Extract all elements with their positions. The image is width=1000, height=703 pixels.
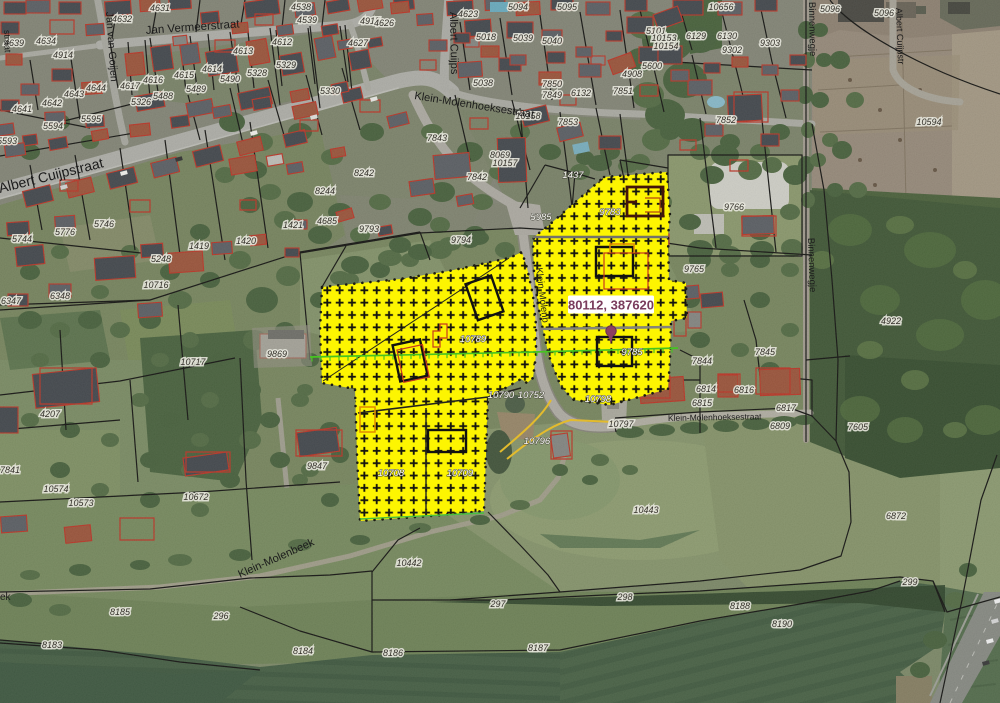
svg-text:5038: 5038 bbox=[473, 78, 493, 88]
svg-text:80112, 387620: 80112, 387620 bbox=[568, 298, 654, 313]
svg-text:5593: 5593 bbox=[0, 136, 17, 146]
svg-text:6816: 6816 bbox=[734, 385, 754, 395]
svg-text:7851: 7851 bbox=[613, 86, 633, 96]
svg-text:6817: 6817 bbox=[776, 403, 797, 413]
svg-text:7845: 7845 bbox=[755, 347, 776, 357]
svg-text:10573: 10573 bbox=[68, 498, 93, 508]
svg-text:5095: 5095 bbox=[557, 2, 578, 12]
svg-text:5094: 5094 bbox=[508, 2, 528, 12]
svg-text:4642: 4642 bbox=[42, 98, 62, 108]
svg-text:9847: 9847 bbox=[307, 461, 328, 471]
svg-text:5776: 5776 bbox=[55, 227, 75, 237]
svg-text:10442: 10442 bbox=[396, 558, 421, 568]
svg-text:9303: 9303 bbox=[760, 38, 780, 48]
svg-text:6815: 6815 bbox=[692, 398, 713, 408]
svg-text:straat: straat bbox=[2, 30, 13, 53]
svg-text:4613: 4613 bbox=[233, 46, 253, 56]
svg-text:7605: 7605 bbox=[848, 422, 869, 432]
svg-text:8187: 8187 bbox=[528, 643, 549, 653]
svg-text:4623: 4623 bbox=[458, 9, 478, 19]
svg-text:4615: 4615 bbox=[174, 70, 195, 80]
svg-text:4539: 4539 bbox=[297, 15, 317, 25]
svg-text:Albert Cuijpstr: Albert Cuijpstr bbox=[894, 8, 906, 65]
svg-text:1420: 1420 bbox=[236, 236, 256, 246]
svg-text:1437: 1437 bbox=[562, 170, 584, 181]
svg-text:5488: 5488 bbox=[153, 91, 173, 101]
svg-text:10752: 10752 bbox=[518, 390, 545, 401]
svg-text:6809: 6809 bbox=[770, 421, 790, 431]
svg-text:4538: 4538 bbox=[291, 2, 311, 12]
svg-text:10443: 10443 bbox=[633, 505, 658, 515]
svg-text:5328: 5328 bbox=[247, 68, 267, 78]
svg-text:10789: 10789 bbox=[460, 334, 487, 345]
svg-text:7842: 7842 bbox=[467, 172, 487, 182]
svg-text:6814: 6814 bbox=[696, 384, 716, 394]
svg-text:8188: 8188 bbox=[730, 601, 750, 611]
svg-text:9869: 9869 bbox=[267, 349, 287, 359]
svg-text:9785: 9785 bbox=[621, 347, 643, 358]
svg-text:4207: 4207 bbox=[40, 409, 61, 419]
svg-text:7850: 7850 bbox=[542, 79, 562, 89]
svg-text:ek: ek bbox=[0, 592, 12, 603]
svg-text:10796: 10796 bbox=[524, 436, 551, 447]
svg-text:8242: 8242 bbox=[354, 168, 374, 178]
svg-text:8184: 8184 bbox=[293, 646, 313, 656]
svg-text:10594: 10594 bbox=[916, 117, 941, 127]
svg-text:4641: 4641 bbox=[12, 104, 32, 114]
svg-text:5326: 5326 bbox=[131, 97, 151, 107]
svg-text:5248: 5248 bbox=[151, 254, 171, 264]
svg-text:4634: 4634 bbox=[36, 36, 56, 46]
svg-text:5040: 5040 bbox=[542, 36, 562, 46]
svg-text:Binnenwegje: Binnenwegje bbox=[805, 238, 818, 293]
svg-text:Klein-Molenhoeksestraat: Klein-Molenhoeksestraat bbox=[668, 411, 762, 423]
svg-text:5744: 5744 bbox=[12, 234, 32, 244]
svg-text:10709: 10709 bbox=[447, 468, 474, 479]
svg-text:4922: 4922 bbox=[881, 316, 901, 326]
svg-text:5329: 5329 bbox=[276, 60, 296, 70]
svg-text:8190: 8190 bbox=[772, 619, 792, 629]
svg-text:5489: 5489 bbox=[186, 84, 206, 94]
svg-text:297: 297 bbox=[489, 599, 506, 609]
svg-text:9793: 9793 bbox=[359, 224, 379, 234]
svg-text:5600: 5600 bbox=[642, 61, 662, 71]
svg-text:298: 298 bbox=[616, 592, 632, 602]
svg-text:9302: 9302 bbox=[722, 45, 742, 55]
svg-text:5096: 5096 bbox=[820, 4, 840, 14]
svg-text:6347: 6347 bbox=[1, 296, 22, 306]
svg-text:10157: 10157 bbox=[492, 158, 518, 168]
svg-text:10798: 10798 bbox=[585, 394, 612, 405]
svg-text:5746: 5746 bbox=[94, 219, 114, 229]
svg-text:4627: 4627 bbox=[348, 38, 369, 48]
svg-text:6129: 6129 bbox=[686, 31, 706, 41]
svg-text:4617: 4617 bbox=[120, 81, 141, 91]
svg-text:7843: 7843 bbox=[427, 133, 447, 143]
svg-text:7852: 7852 bbox=[716, 115, 736, 125]
svg-text:8244: 8244 bbox=[315, 186, 335, 196]
svg-text:7841: 7841 bbox=[0, 465, 20, 475]
svg-text:4631: 4631 bbox=[150, 3, 170, 13]
svg-text:4908: 4908 bbox=[622, 69, 642, 79]
svg-text:10154: 10154 bbox=[653, 41, 678, 51]
svg-text:5595: 5595 bbox=[81, 114, 102, 124]
svg-text:7849: 7849 bbox=[542, 90, 562, 100]
svg-text:1421: 1421 bbox=[283, 220, 303, 230]
svg-text:299: 299 bbox=[901, 577, 917, 587]
svg-text:9765: 9765 bbox=[684, 264, 705, 274]
svg-text:8185: 8185 bbox=[110, 607, 131, 617]
svg-text:10797: 10797 bbox=[608, 419, 634, 429]
svg-text:10716: 10716 bbox=[143, 280, 168, 290]
svg-text:10656: 10656 bbox=[708, 2, 733, 12]
svg-text:7853: 7853 bbox=[558, 117, 578, 127]
svg-text:6132: 6132 bbox=[571, 88, 591, 98]
svg-text:10672: 10672 bbox=[183, 492, 208, 502]
svg-text:1419: 1419 bbox=[189, 241, 209, 251]
svg-text:4643: 4643 bbox=[64, 89, 84, 99]
svg-text:Binnenwegje: Binnenwegje bbox=[806, 2, 818, 57]
svg-text:4614: 4614 bbox=[202, 64, 222, 74]
svg-text:5039: 5039 bbox=[513, 33, 533, 43]
svg-text:Albert Cuijps: Albert Cuijps bbox=[447, 12, 460, 75]
svg-text:9794: 9794 bbox=[451, 235, 471, 245]
svg-text:5330: 5330 bbox=[320, 86, 340, 96]
svg-text:5594: 5594 bbox=[43, 121, 63, 131]
svg-text:4685: 4685 bbox=[317, 216, 338, 226]
svg-text:8186: 8186 bbox=[383, 648, 403, 658]
svg-text:7844: 7844 bbox=[692, 356, 712, 366]
svg-text:10717: 10717 bbox=[180, 357, 206, 367]
svg-text:9766: 9766 bbox=[724, 202, 744, 212]
svg-text:6348: 6348 bbox=[50, 291, 70, 301]
svg-text:10790: 10790 bbox=[488, 390, 515, 401]
svg-text:296: 296 bbox=[212, 611, 228, 621]
svg-text:4914: 4914 bbox=[53, 50, 73, 60]
svg-text:6130: 6130 bbox=[717, 31, 737, 41]
svg-text:5096: 5096 bbox=[874, 8, 894, 18]
svg-text:10708: 10708 bbox=[378, 468, 405, 479]
svg-text:4616: 4616 bbox=[143, 75, 163, 85]
svg-text:5018: 5018 bbox=[476, 32, 496, 42]
svg-text:4644: 4644 bbox=[86, 83, 106, 93]
svg-text:5490: 5490 bbox=[220, 74, 240, 84]
svg-text:5985: 5985 bbox=[530, 212, 552, 223]
svg-text:10574: 10574 bbox=[43, 484, 68, 494]
svg-text:4612: 4612 bbox=[272, 37, 292, 47]
svg-text:4626: 4626 bbox=[374, 18, 394, 28]
svg-text:8183: 8183 bbox=[42, 640, 62, 650]
svg-text:6872: 6872 bbox=[886, 511, 906, 521]
svg-text:9783: 9783 bbox=[599, 207, 621, 218]
